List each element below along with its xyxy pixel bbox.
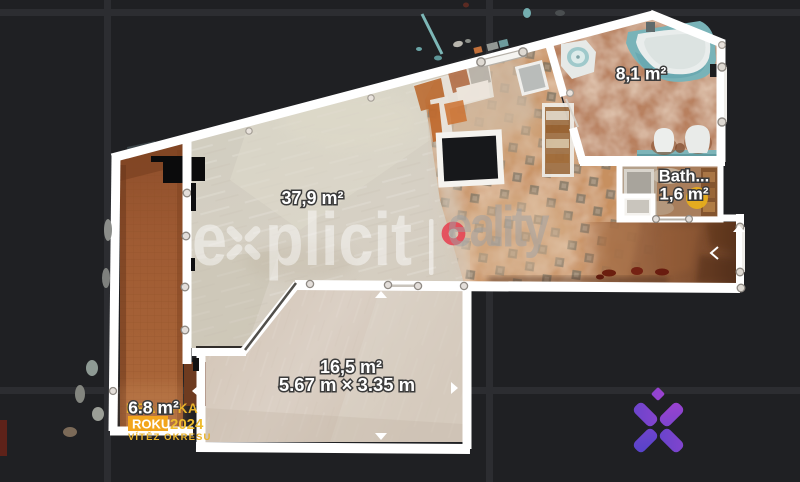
svg-text:VÍTĚZ OKRESU: VÍTĚZ OKRESU xyxy=(128,431,211,443)
svg-text:2024: 2024 xyxy=(170,416,204,433)
svg-text:1,6 m²: 1,6 m² xyxy=(659,185,708,204)
svg-text:8,1 m²: 8,1 m² xyxy=(616,64,667,84)
svg-text:6.8 m²: 6.8 m² xyxy=(128,398,179,418)
svg-text:plicit: plicit xyxy=(265,197,412,282)
svg-text:e: e xyxy=(192,197,227,282)
svg-text:37,9 m²: 37,9 m² xyxy=(281,188,343,208)
svg-text:ROKU: ROKU xyxy=(132,417,170,432)
svg-text:eality: eality xyxy=(447,195,550,259)
svg-text:Bath...: Bath... xyxy=(659,168,709,186)
svg-text:5.67 m × 3.35 m: 5.67 m × 3.35 m xyxy=(279,374,415,395)
